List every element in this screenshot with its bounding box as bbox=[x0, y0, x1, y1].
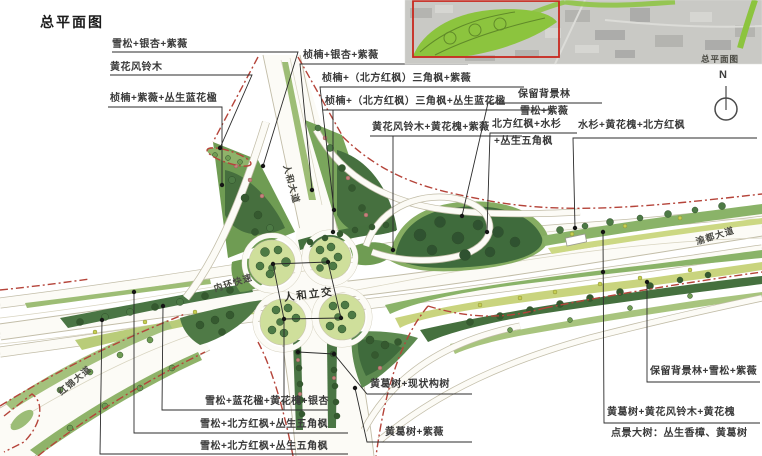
page-title: 总平面图 bbox=[40, 12, 104, 32]
plant-label-19: 黄葛树+黄花风铃木+黄花槐 bbox=[607, 407, 735, 419]
plant-label-13: 雪松+蓝花楹+黄花槐+银杏 bbox=[205, 396, 329, 408]
plant-label-17: 黄葛树+紫薇 bbox=[385, 427, 444, 439]
plant-label-04: 桢楠+银杏+紫薇 bbox=[303, 50, 379, 62]
master-plan-page: 总平面图 N 总平面图 人和大道 内环快速 红锦大道 渝都大道 人和立交 雪松+… bbox=[0, 0, 762, 456]
plant-label-11: +丛生五角枫 bbox=[494, 136, 553, 148]
plant-label-20: 点景大树：丛生香樟、黄葛树 bbox=[611, 428, 748, 440]
plant-label-03: 桢楠+紫薇+丛生蓝花楹 bbox=[110, 93, 217, 105]
plant-label-12: 水杉+黄花槐+北方红枫 bbox=[578, 120, 685, 132]
plant-label-07: 黄花风铃木+黄花槐+紫薇 bbox=[372, 122, 490, 134]
plant-label-05: 桢楠+（北方红枫）三角枫+紫薇 bbox=[322, 73, 471, 85]
plant-label-10: 北方红枫+水杉 bbox=[492, 119, 561, 131]
plant-label-18: 保留背景林+雪松+紫薇 bbox=[650, 366, 757, 378]
inset-caption: 总平面图 bbox=[701, 53, 739, 65]
plant-label-08: 保留背景林 bbox=[518, 89, 571, 101]
plant-label-06: 桢楠+（北方红枫）三角枫+丛生蓝花楹 bbox=[325, 96, 506, 108]
plant-label-14: 雪松+北方红枫+丛生五角枫 bbox=[200, 419, 328, 431]
north-arrow-label: N bbox=[719, 69, 727, 81]
plant-label-02: 黄花风铃木 bbox=[110, 62, 163, 74]
plant-label-15: 雪松+北方红枫+丛生五角枫 bbox=[200, 441, 328, 453]
plant-label-09: 雪松+紫薇 bbox=[520, 106, 568, 118]
plant-label-16: 黄葛树+现状构树 bbox=[370, 379, 450, 391]
plant-label-01: 雪松+银杏+紫薇 bbox=[112, 39, 188, 51]
north-arrow-icon bbox=[715, 86, 737, 120]
